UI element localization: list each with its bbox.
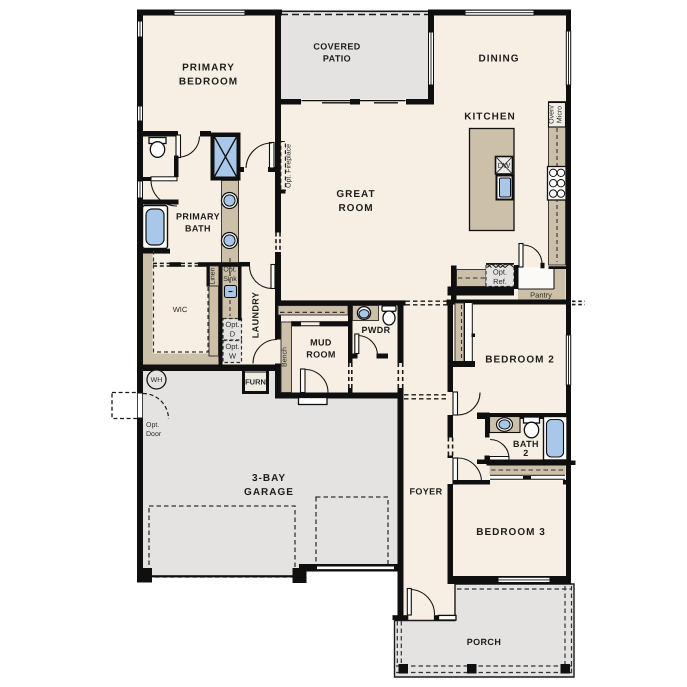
svg-text:WH: WH [151, 377, 163, 384]
svg-text:PRIMARY: PRIMARY [182, 63, 235, 74]
svg-text:D: D [230, 330, 236, 339]
svg-text:Ref.: Ref. [493, 277, 507, 286]
svg-text:COVERED: COVERED [313, 42, 360, 52]
svg-text:BEDROOM 2: BEDROOM 2 [485, 355, 555, 366]
svg-text:BEDROOM 3: BEDROOM 3 [476, 527, 546, 538]
svg-text:Pantry: Pantry [530, 291, 552, 300]
svg-text:WIC: WIC [173, 305, 188, 314]
svg-text:FURN: FURN [245, 378, 266, 387]
svg-text:GARAGE: GARAGE [244, 487, 294, 498]
svg-text:Opt.: Opt. [223, 267, 236, 274]
svg-text:Door: Door [146, 431, 162, 438]
svg-text:FOYER: FOYER [409, 487, 442, 497]
svg-text:Opt.: Opt. [225, 320, 239, 329]
svg-text:Bench: Bench [281, 347, 289, 367]
svg-text:Opt.: Opt. [493, 268, 507, 277]
svg-text:W: W [229, 352, 237, 361]
svg-text:ROOM: ROOM [338, 203, 373, 214]
svg-text:3-BAY: 3-BAY [252, 473, 286, 484]
svg-text:Sink: Sink [223, 275, 237, 283]
svg-text:Opt.: Opt. [146, 422, 159, 429]
svg-text:Oven/: Oven/ [548, 105, 556, 124]
svg-text:BEDROOM: BEDROOM [179, 77, 238, 88]
svg-text:KITCHEN: KITCHEN [464, 112, 515, 123]
svg-text:Opt. Fireplace: Opt. Fireplace [285, 144, 293, 188]
svg-text:PATIO: PATIO [323, 54, 351, 64]
svg-text:Linen: Linen [209, 267, 217, 284]
svg-text:DW: DW [498, 161, 511, 170]
svg-text:PRIMARY: PRIMARY [176, 212, 220, 222]
svg-text:ROOM: ROOM [306, 350, 336, 360]
svg-text:LAUNDRY: LAUNDRY [251, 292, 261, 338]
svg-text:MUD: MUD [310, 338, 332, 348]
svg-text:PORCH: PORCH [467, 637, 502, 647]
svg-text:DINING: DINING [479, 54, 520, 65]
svg-text:PWDR: PWDR [361, 325, 390, 335]
svg-text:Micro: Micro [556, 106, 564, 123]
svg-text:2: 2 [523, 448, 528, 458]
svg-text:BATH: BATH [185, 224, 211, 234]
svg-text:Opt.: Opt. [225, 342, 239, 351]
svg-text:GREAT: GREAT [336, 189, 375, 200]
